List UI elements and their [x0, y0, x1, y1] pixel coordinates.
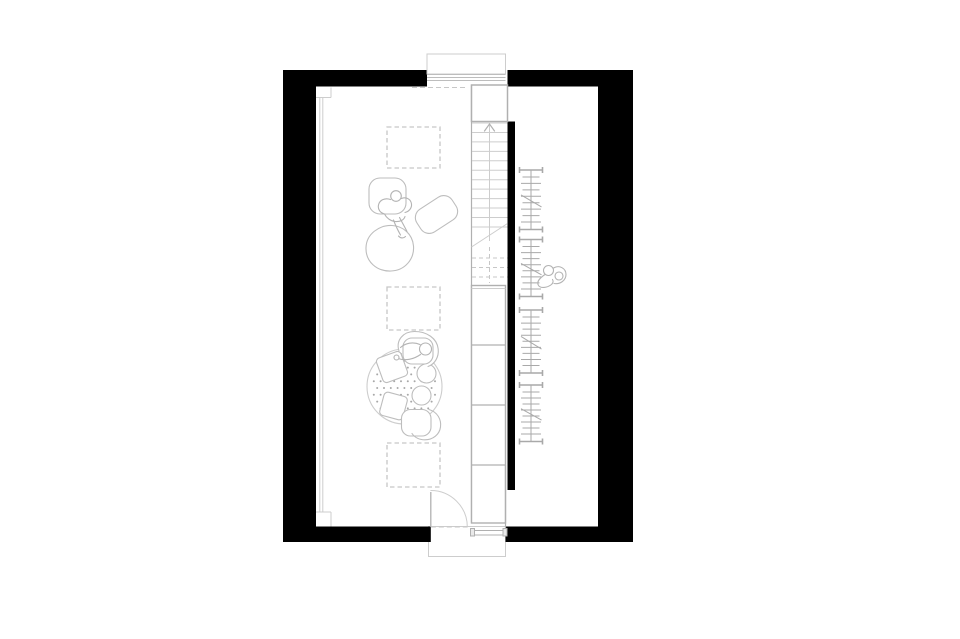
- rug-dot: [380, 380, 382, 382]
- storage-shaft-outline: [472, 286, 506, 524]
- beanbag-pouf: [366, 225, 414, 271]
- right-wall: [598, 70, 633, 542]
- person-detail: [394, 355, 399, 360]
- wardrobe-rail-4: [520, 382, 543, 445]
- rug-dot: [403, 387, 405, 389]
- rug-dot: [407, 394, 409, 396]
- rug-dot: [376, 387, 378, 389]
- rug-dot: [434, 394, 436, 396]
- rug-dot: [380, 394, 382, 396]
- skylight-top: [387, 127, 440, 168]
- rug-dot: [397, 387, 399, 389]
- rug-dot: [434, 380, 436, 382]
- skylight-middle: [387, 287, 440, 330]
- rug-dot: [373, 380, 375, 382]
- rug-dot: [373, 394, 375, 396]
- stool: [417, 364, 436, 383]
- floor-plan-page: [0, 0, 960, 639]
- lounge-furniture: [366, 178, 461, 271]
- threshold-end-block: [471, 529, 475, 537]
- dormer-box: [427, 54, 506, 74]
- wardrobe-rail-3: [520, 307, 543, 376]
- rug-dot: [376, 401, 378, 403]
- rug-dot: [410, 387, 412, 389]
- stair-side-wall: [508, 122, 516, 491]
- person-body-line: [385, 214, 406, 222]
- rug-dot: [431, 401, 433, 403]
- person-head: [544, 266, 554, 276]
- wardrobe-rail-2: [520, 237, 543, 300]
- rug-dot: [414, 367, 416, 369]
- bottom-wall-left: [283, 527, 431, 543]
- ottoman: [412, 192, 462, 238]
- rug-dot: [410, 401, 412, 403]
- rug-dot: [414, 380, 416, 382]
- skylight-bottom: [387, 443, 440, 487]
- bottom-wall-right: [506, 527, 634, 543]
- chair-seat: [402, 410, 432, 437]
- rug-dot: [400, 380, 402, 382]
- storage-shaft: [471, 286, 508, 537]
- left-window: [316, 88, 331, 527]
- floor-plan-drawing: [0, 0, 960, 639]
- person-detail: [555, 272, 563, 280]
- walls-layer: [283, 70, 633, 542]
- door-swing-arc: [431, 491, 468, 528]
- person-head: [391, 191, 402, 202]
- rug-dot: [383, 387, 385, 389]
- rug-dot: [407, 407, 409, 409]
- rug-dot: [431, 387, 433, 389]
- rug-dot: [390, 387, 392, 389]
- rug-dot: [407, 380, 409, 382]
- person-right-room: [538, 266, 566, 288]
- rug-dot: [407, 367, 409, 369]
- stair-landing: [472, 85, 508, 122]
- rug-dot: [376, 373, 378, 375]
- stool: [412, 386, 431, 405]
- person-head: [420, 343, 432, 355]
- rug-dot: [410, 373, 412, 375]
- wardrobe-rails: [520, 167, 543, 445]
- left-wall: [283, 70, 316, 542]
- wardrobe-rail-1: [520, 167, 543, 233]
- entry-door: [431, 491, 468, 528]
- threshold-end-block: [503, 529, 507, 537]
